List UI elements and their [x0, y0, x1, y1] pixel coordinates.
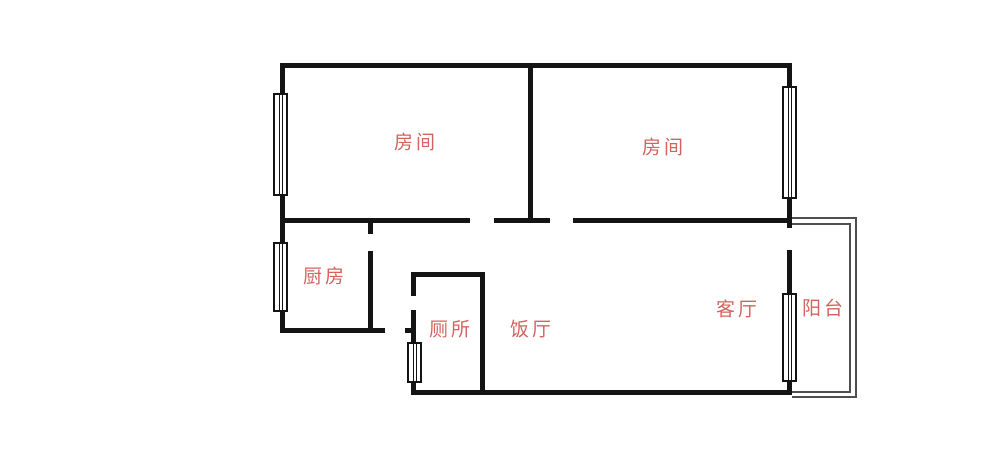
bedroom-2-window [782, 86, 797, 199]
bottom-wall [411, 390, 792, 395]
room-label-toilet: 厕所 [429, 321, 473, 340]
kitchen-window [273, 242, 288, 312]
living-window [782, 293, 797, 382]
room-label-bedroom-2: 房间 [642, 139, 686, 158]
room-label-balcony: 阳台 [802, 300, 846, 319]
living-window-pane [788, 295, 792, 380]
room-label-bedroom-1: 房间 [394, 134, 438, 153]
kitchen-bottom-wall [280, 328, 385, 333]
top-wall [280, 63, 792, 68]
bedrooms-bottom-wall-c [573, 218, 792, 223]
toilet-right-wall [480, 272, 485, 395]
room-label-kitchen: 厨房 [303, 268, 347, 287]
floor-plan-canvas: 房间房间厨房厕所饭厅客厅阳台 [0, 0, 1000, 466]
toilet-window-pane [413, 344, 417, 381]
kitchen-right-wall-stub [368, 223, 373, 234]
bedroom-1-window-pane [279, 95, 283, 194]
toilet-top-wall [411, 272, 485, 277]
room-label-living: 客厅 [716, 301, 760, 320]
room-label-dining: 饭厅 [510, 321, 554, 340]
kitchen-right-wall [368, 251, 373, 333]
bedrooms-bottom-wall-b [494, 218, 550, 223]
kitchen-window-pane [279, 244, 283, 310]
bedrooms-bottom-wall-a [280, 218, 470, 223]
bedroom-2-window-pane [788, 88, 792, 197]
toilet-window [407, 342, 422, 383]
bedroom-divider-wall [528, 63, 533, 223]
bedroom-1-window [273, 93, 288, 196]
